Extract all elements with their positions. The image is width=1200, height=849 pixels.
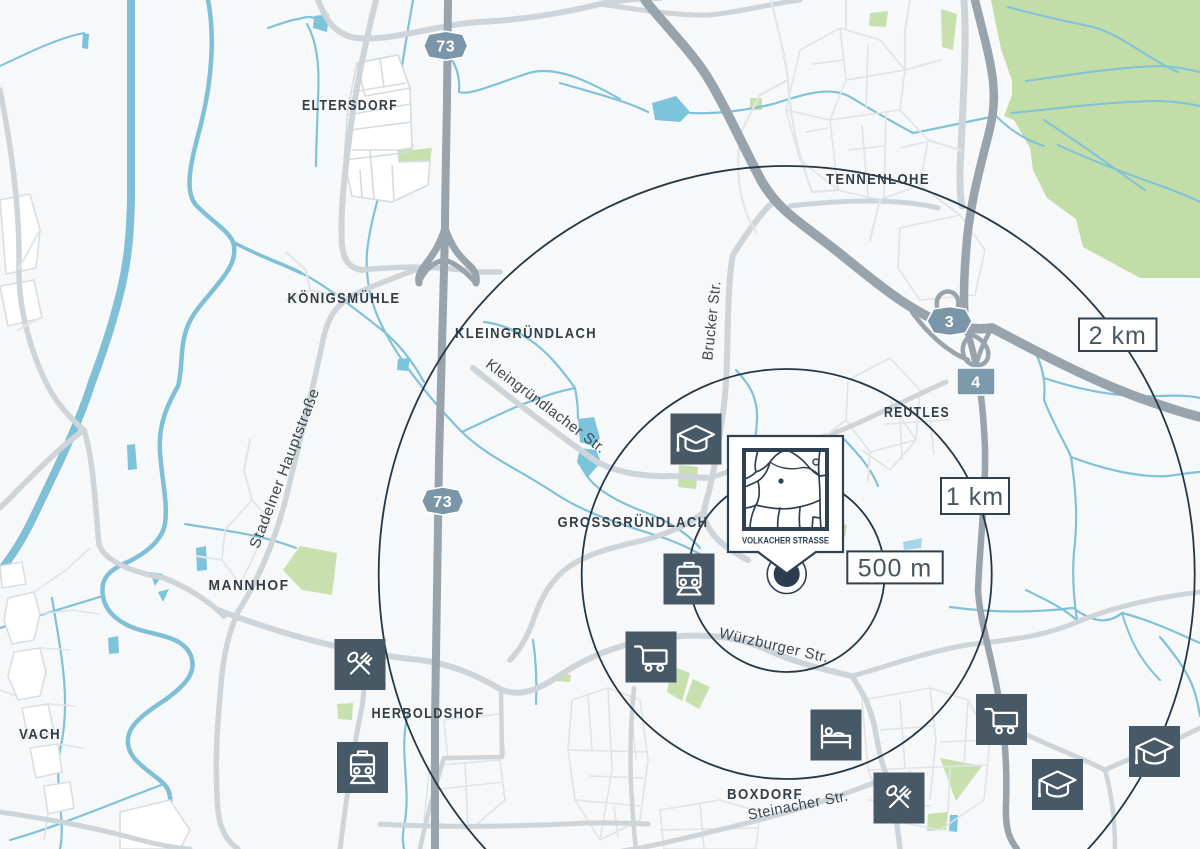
svg-text:500 m: 500 m (858, 555, 932, 583)
svg-text:73: 73 (436, 39, 455, 56)
svg-text:VACH: VACH (19, 726, 61, 743)
svg-text:ELTERSDORF: ELTERSDORF (302, 97, 398, 114)
svg-text:1 km: 1 km (946, 483, 1004, 511)
svg-text:VOLKACHER STRASSE: VOLKACHER STRASSE (742, 536, 829, 546)
svg-text:4: 4 (971, 374, 980, 391)
svg-text:TENNENLOHE: TENNENLOHE (826, 171, 930, 188)
svg-text:MANNHOF: MANNHOF (209, 577, 290, 594)
svg-text:REUTLES: REUTLES (884, 404, 950, 421)
svg-text:KÖNIGSMÜHLE: KÖNIGSMÜHLE (288, 290, 401, 307)
svg-text:KLEINGRÜNDLACH: KLEINGRÜNDLACH (455, 325, 597, 342)
svg-text:BOXDORF: BOXDORF (727, 786, 803, 803)
svg-text:3: 3 (945, 314, 954, 331)
svg-text:HERBOLDSHOF: HERBOLDSHOF (372, 705, 485, 722)
svg-text:2 km: 2 km (1089, 322, 1147, 350)
svg-text:GROSSGRÜNDLACH: GROSSGRÜNDLACH (558, 514, 709, 531)
svg-text:73: 73 (433, 494, 452, 511)
